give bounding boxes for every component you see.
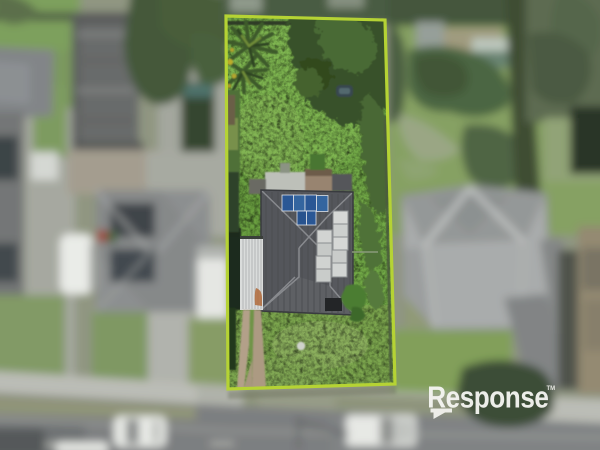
svg-text:TM: TM bbox=[547, 386, 556, 392]
